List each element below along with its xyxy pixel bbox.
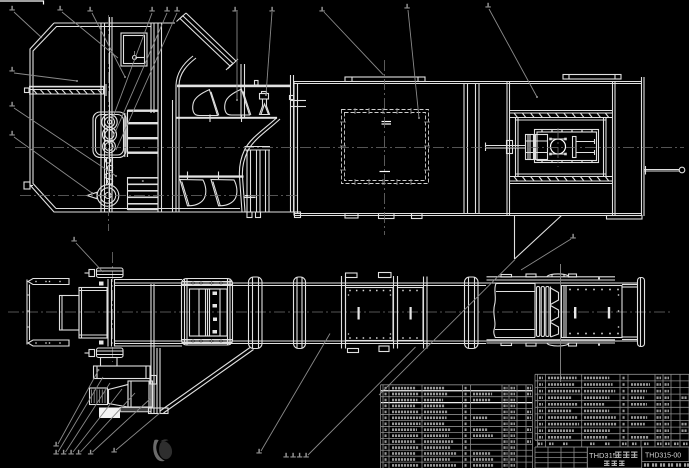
svg-text:THD315-00: THD315-00: [645, 453, 681, 460]
svg-text:THD315: THD315: [589, 451, 617, 460]
